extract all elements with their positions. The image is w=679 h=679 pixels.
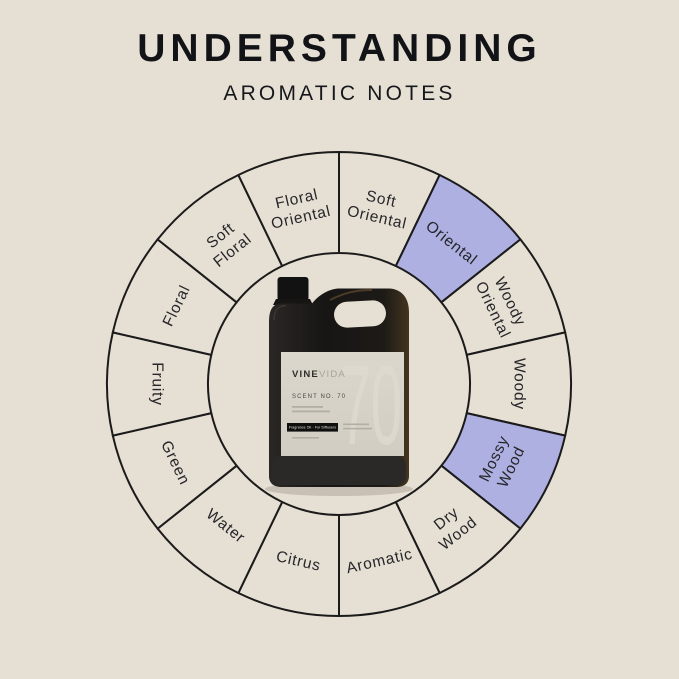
header: UNDERSTANDING AROMATIC NOTES [0,0,679,106]
label-fineprint-line-3 [343,424,369,426]
wheel-label-fruity: Fruity [149,362,166,406]
product-bottle: 70 VINEVIDA SCENT NO. 70 Fragrance Oil -… [265,277,413,496]
bottle-label: 70 VINEVIDA SCENT NO. 70 Fragrance Oil -… [281,343,404,468]
scent-number-text: SCENT NO. 70 [292,394,346,400]
label-fineprint-line-2 [292,411,330,413]
brand-text-bold: VINE [292,369,319,380]
label-fineprint-line-1 [292,406,323,408]
wheel-label-woody: Woody [511,358,528,410]
bottle-handle-hole [333,300,386,329]
page-subtitle: AROMATIC NOTES [0,82,679,106]
label-fineprint-line-4 [343,428,372,430]
brand-text: VINEVIDA [292,369,346,380]
label-fineprint-line-5 [292,437,319,439]
brand-text-light: VIDA [319,369,346,380]
label-info-bar-text: Fragrance Oil - For Diffusers [289,426,336,430]
page-title: UNDERSTANDING [0,29,679,69]
infographic: UNDERSTANDING AROMATIC NOTES SoftOrienta… [0,0,679,679]
label-watermark-number: 70 [340,343,402,468]
bottle-cap-icon [278,277,309,301]
